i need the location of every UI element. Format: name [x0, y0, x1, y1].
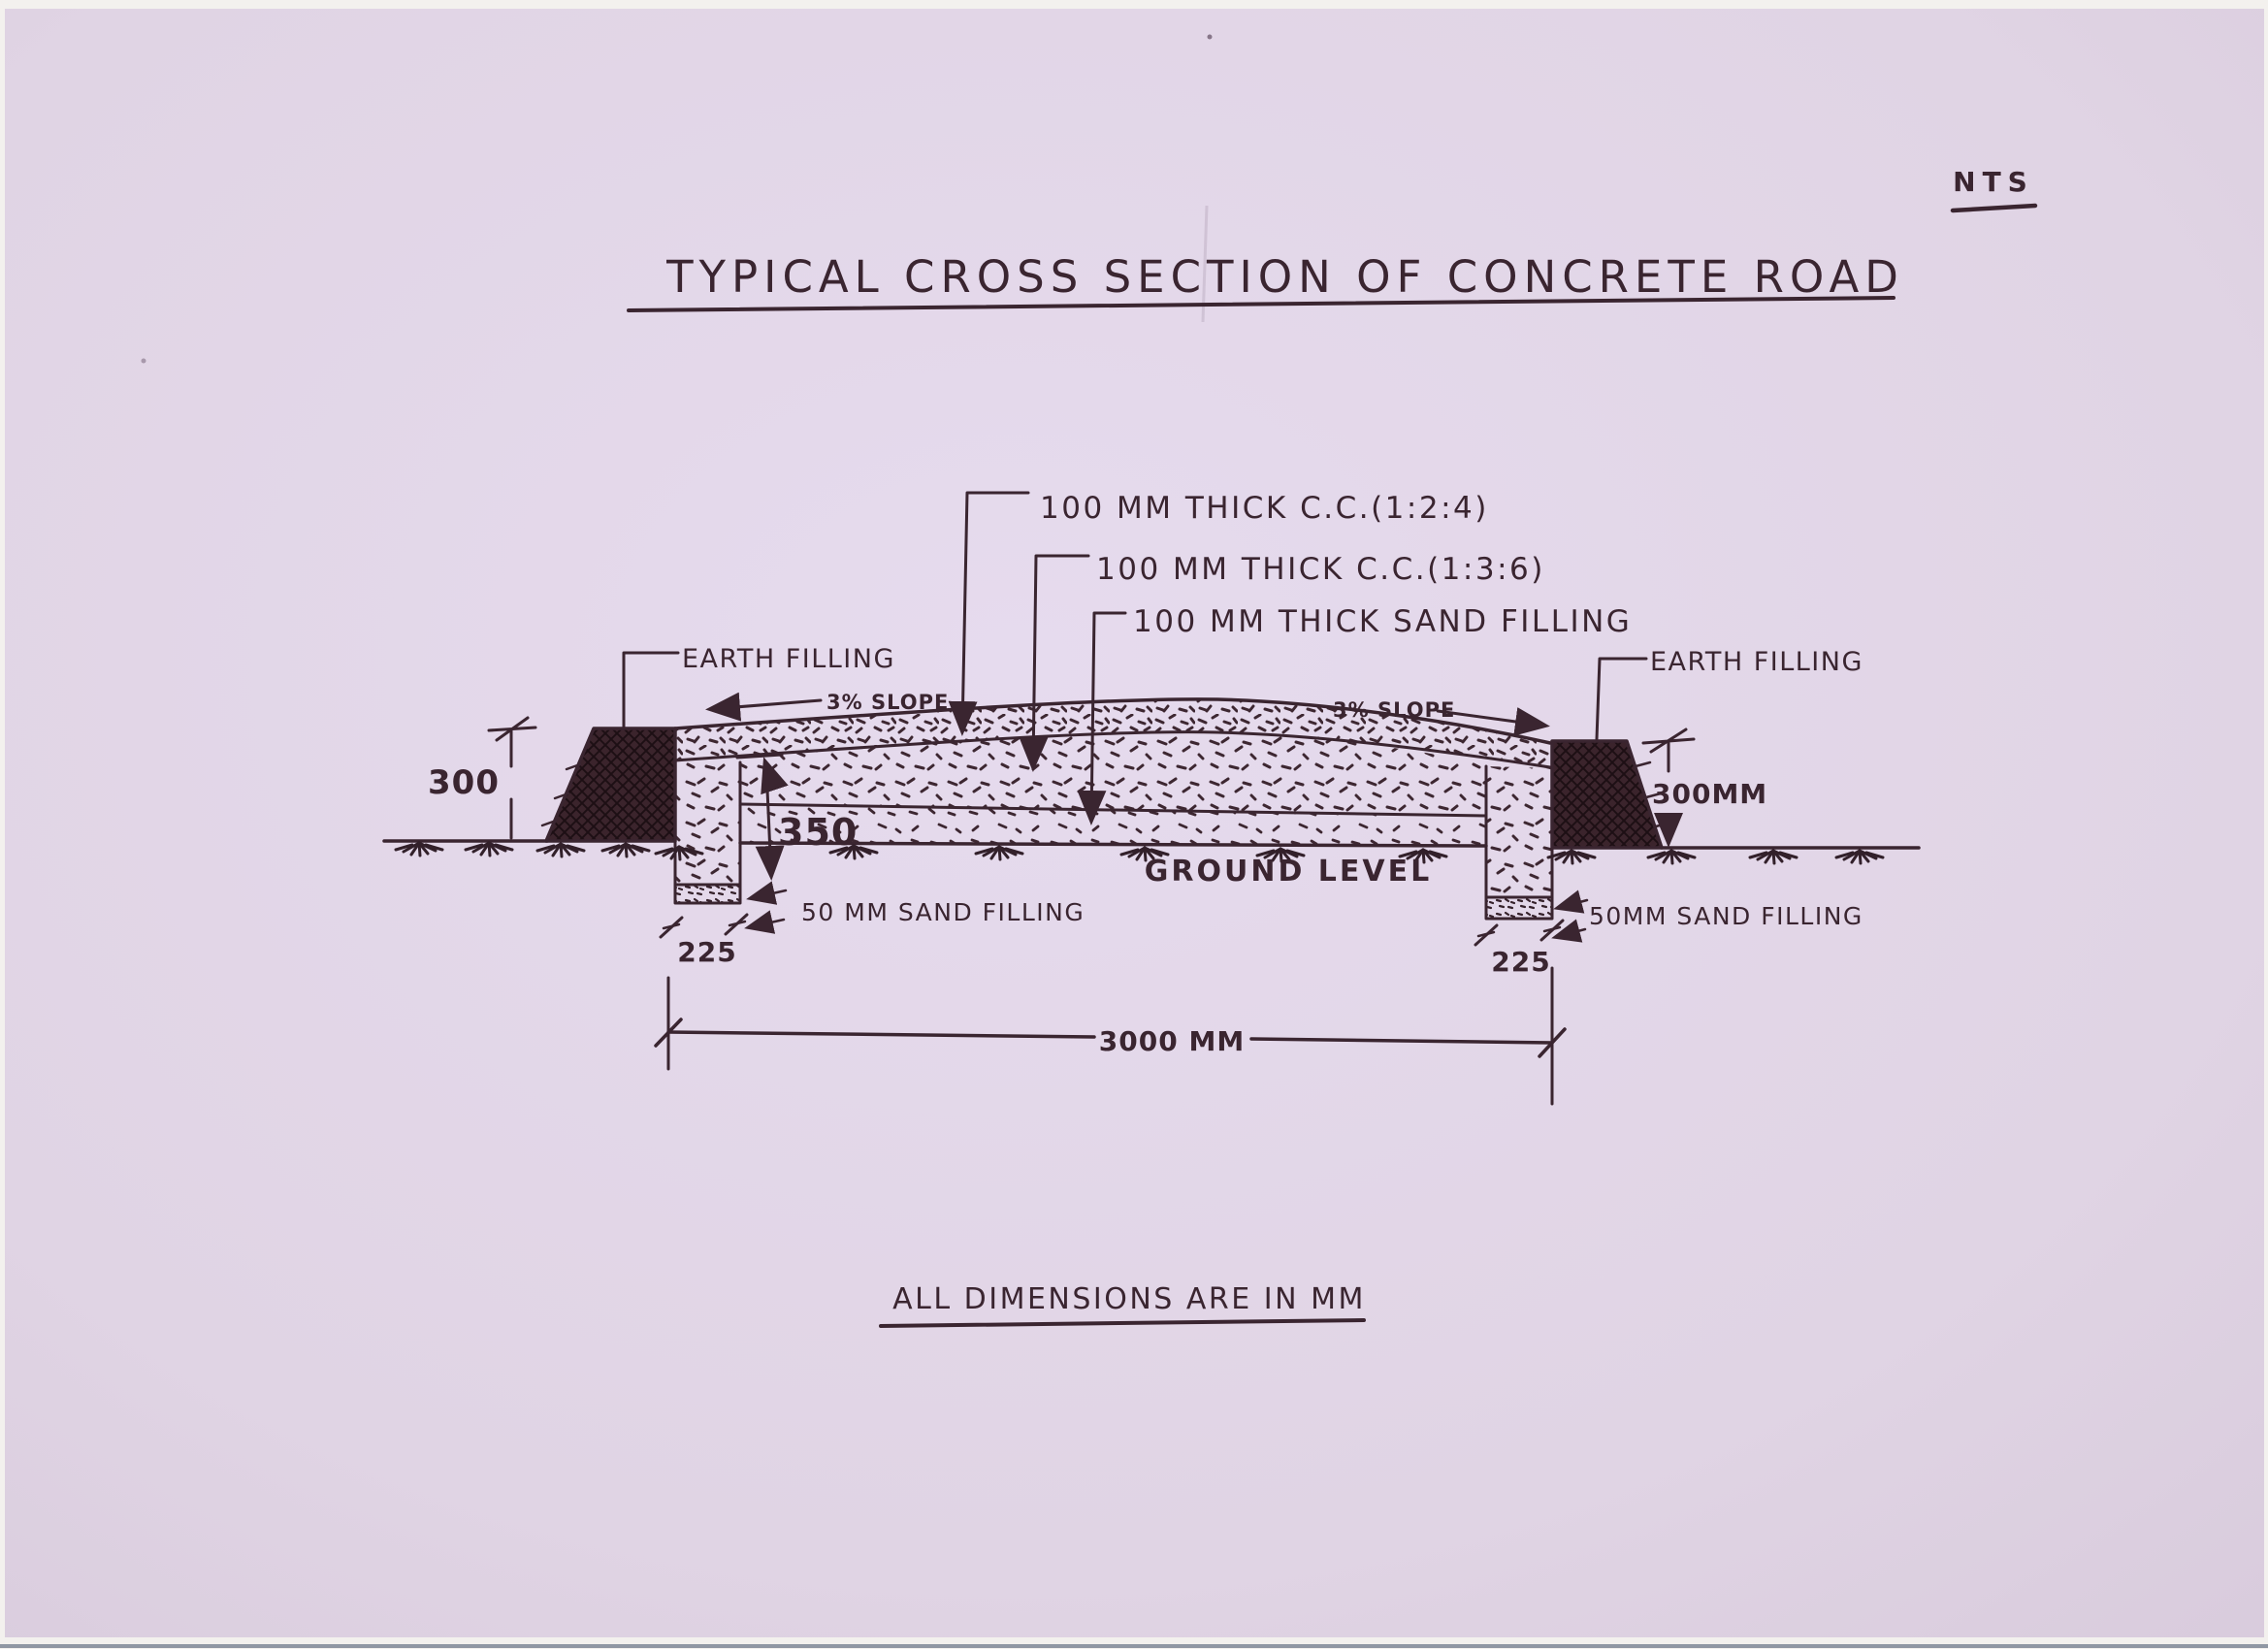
right-kerb-texture — [1486, 766, 1552, 897]
left-kerb-sand-strip — [675, 885, 740, 903]
sand-filling-left-label: 50 MM SAND FILLING — [801, 898, 1085, 926]
dim-300-right-value: 300MM — [1652, 778, 1767, 810]
layer3-label: 100 MM THICK SAND FILLING — [1133, 604, 1632, 639]
dim-3000-value: 3000 MM — [1099, 1025, 1245, 1057]
paper-speck — [142, 359, 146, 364]
dim-350-value: 350 — [778, 811, 858, 854]
earth-filling-right-label: EARTH FILLING — [1650, 647, 1863, 677]
scale-note: NTS — [1953, 166, 2034, 198]
slope-left-label: 3% SLOPE — [826, 691, 949, 714]
footnote: ALL DIMENSIONS ARE IN MM — [892, 1282, 1366, 1316]
scanned-drawing-page: NTS TYPICAL CROSS SECTION OF CONCRETE RO… — [0, 0, 2268, 1649]
left-kerb-texture — [675, 760, 740, 885]
page-title: TYPICAL CROSS SECTION OF CONCRETE ROAD — [665, 251, 1904, 303]
ground-level-label: GROUND LEVEL — [1145, 855, 1432, 889]
scan-bottom-edge — [0, 1644, 2268, 1648]
sand-filling-right-label: 50MM SAND FILLING — [1589, 902, 1863, 930]
dim-300-left-value: 300 — [428, 763, 500, 802]
paper-speck — [1208, 35, 1213, 40]
right-kerb-sand-strip — [1486, 897, 1552, 919]
earth-filling-left-label: EARTH FILLING — [682, 644, 895, 674]
layer2-label: 100 MM THICK C.C.(1:3:6) — [1096, 552, 1545, 587]
cross-section-drawing: NTS TYPICAL CROSS SECTION OF CONCRETE RO… — [0, 0, 2268, 1649]
dim-225-left-value: 225 — [677, 936, 736, 968]
dim-225-right-value: 225 — [1491, 946, 1550, 978]
layer1-label: 100 MM THICK C.C.(1:2:4) — [1040, 491, 1489, 526]
